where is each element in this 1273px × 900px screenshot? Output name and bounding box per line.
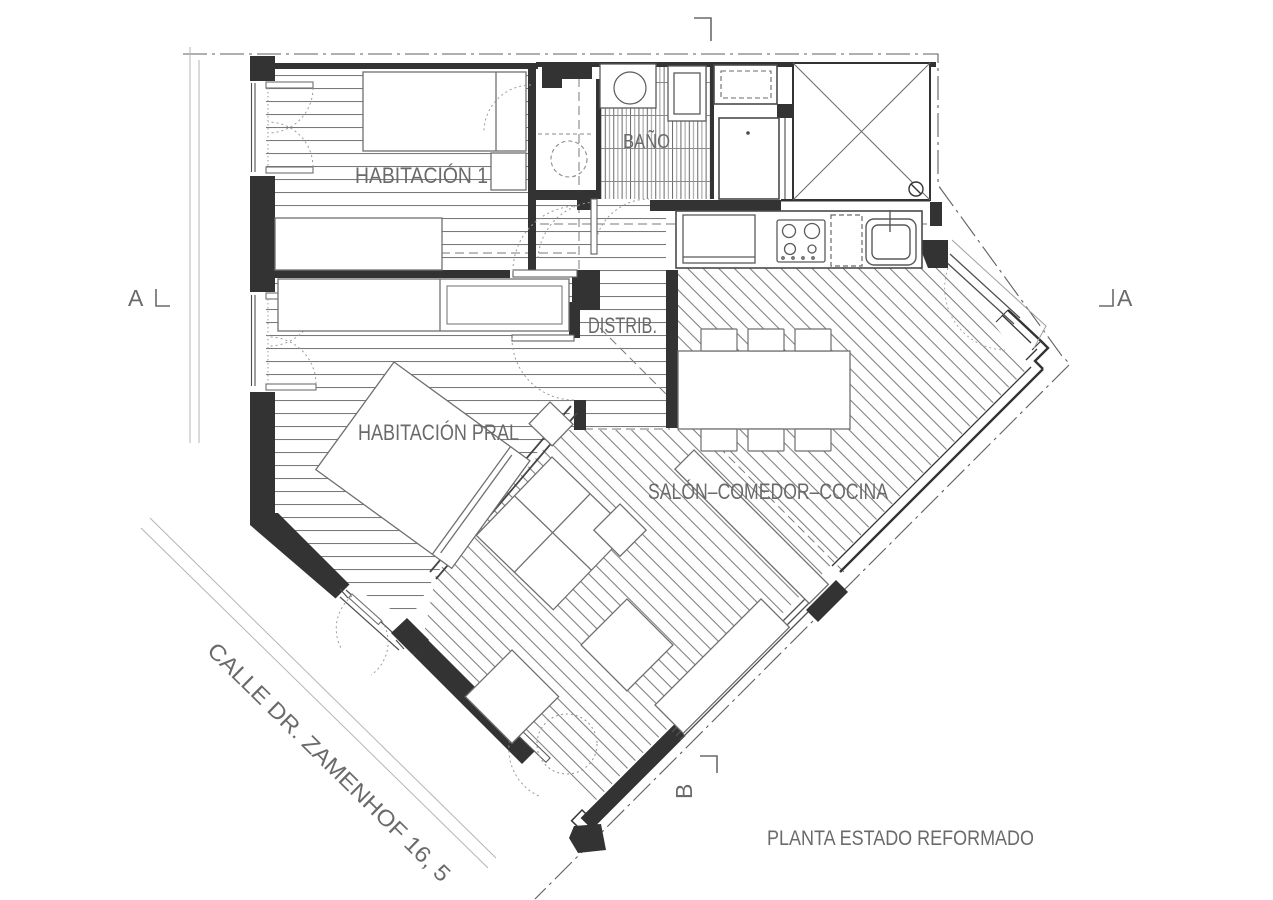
svg-text:B: B <box>671 784 697 799</box>
svg-text:A: A <box>1117 285 1133 311</box>
svg-text:HABITACIÓN 1: HABITACIÓN 1 <box>355 163 488 188</box>
svg-text:CALLE DR. ZAMENHOF 16, 5: CALLE DR. ZAMENHOF 16, 5 <box>202 638 455 887</box>
svg-text:HABITACIÓN PRAL: HABITACIÓN PRAL <box>358 420 519 445</box>
svg-text:SALÓN–COMEDOR–COCINA: SALÓN–COMEDOR–COCINA <box>648 479 888 504</box>
svg-text:DISTRIB.: DISTRIB. <box>588 313 657 338</box>
svg-text:A: A <box>128 285 144 311</box>
svg-text:BAÑO: BAÑO <box>623 130 670 153</box>
svg-text:PLANTA ESTADO REFORMADO: PLANTA ESTADO REFORMADO <box>767 826 1034 850</box>
